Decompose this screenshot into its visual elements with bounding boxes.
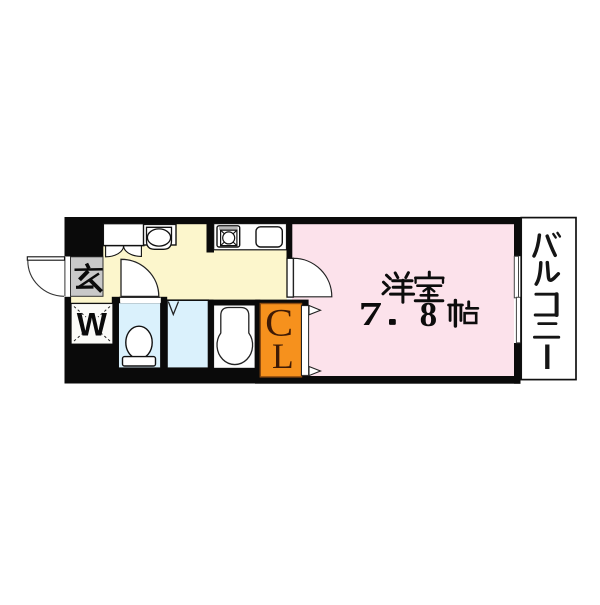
svg-text:W: W bbox=[77, 307, 108, 343]
svg-text:8: 8 bbox=[420, 295, 438, 334]
svg-text:7: 7 bbox=[359, 296, 383, 333]
svg-text:L: L bbox=[272, 336, 294, 376]
